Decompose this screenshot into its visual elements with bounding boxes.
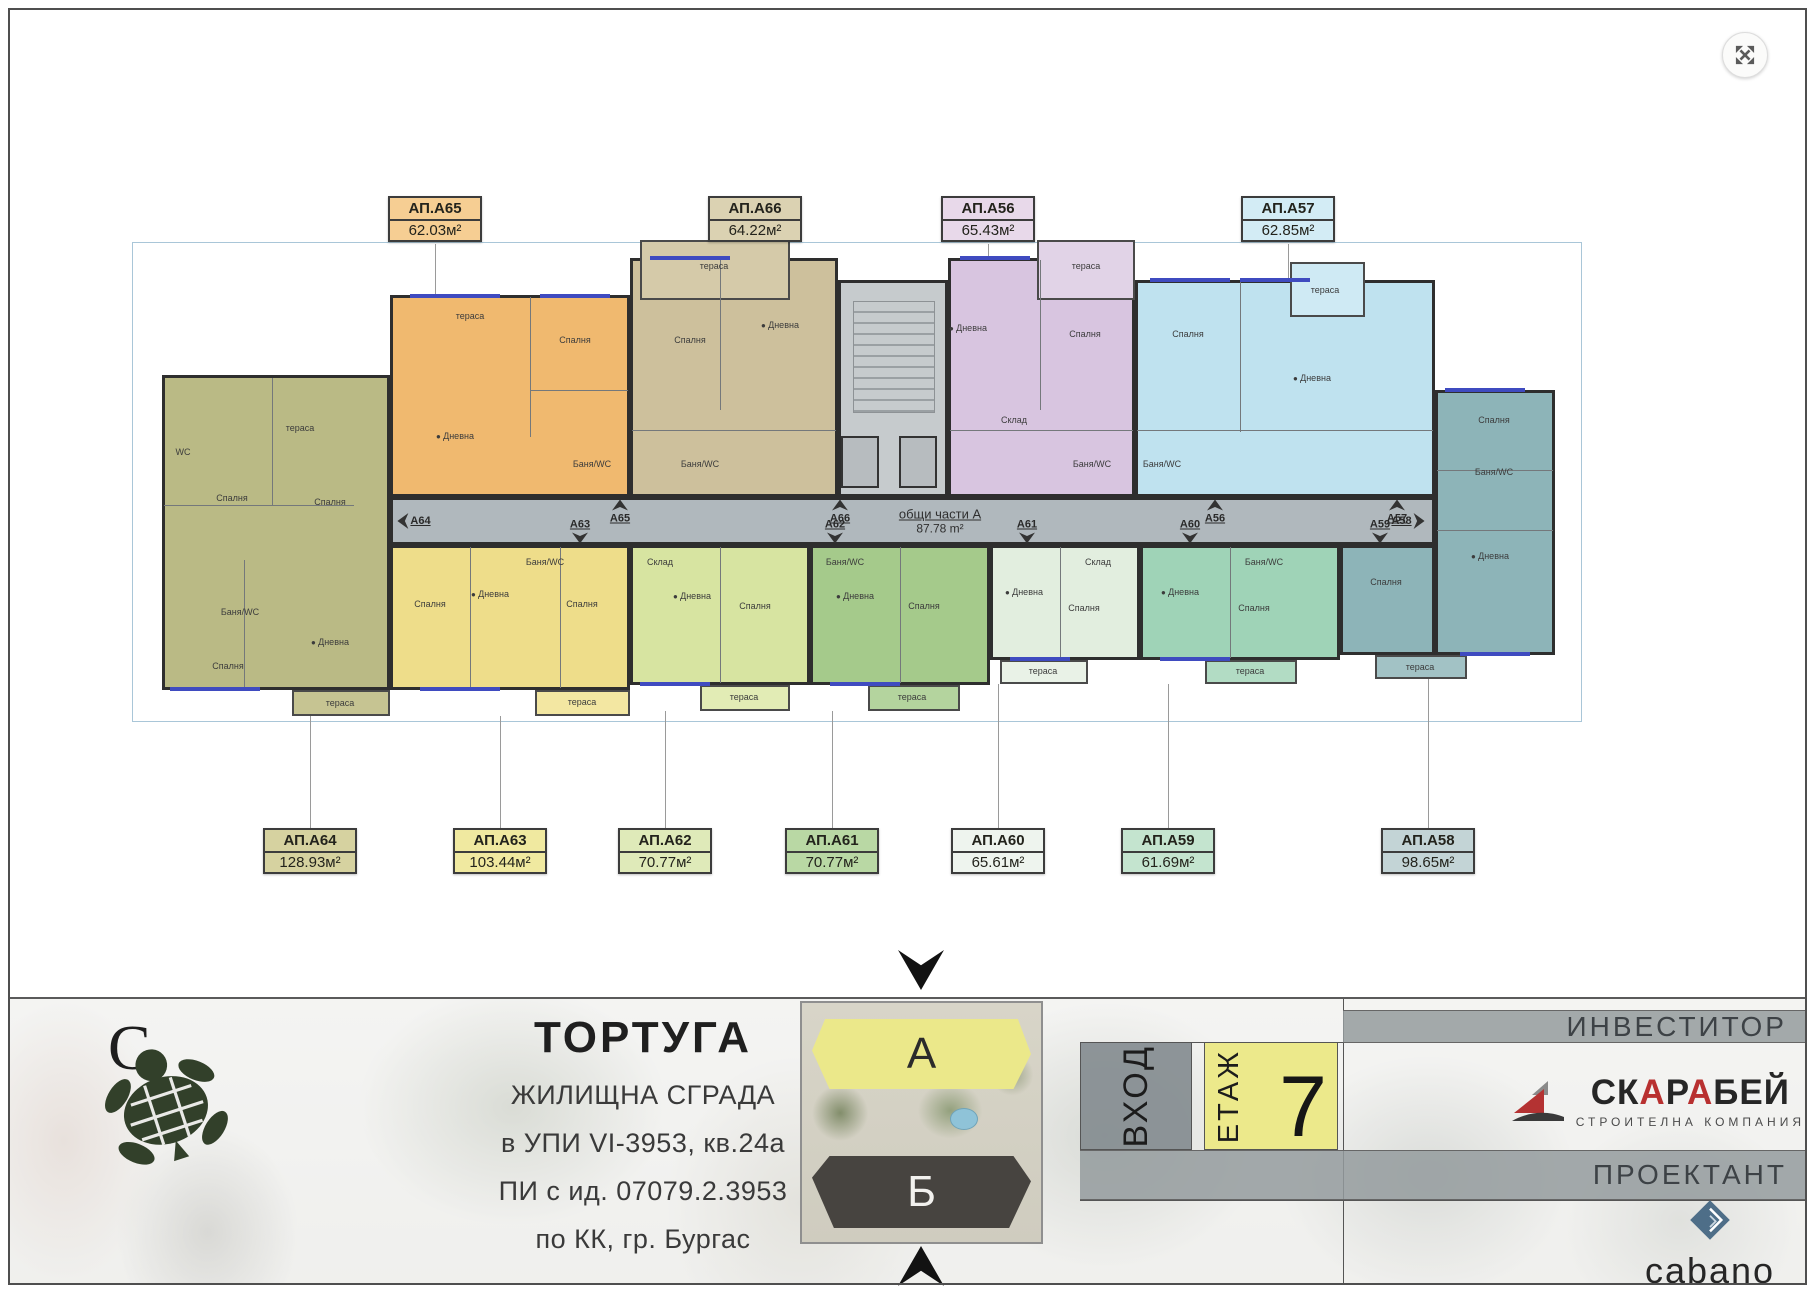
apartment-size: 70.77м² xyxy=(787,851,877,872)
window-segment xyxy=(420,687,500,691)
inner-wall xyxy=(530,297,531,437)
leader-line xyxy=(1428,679,1429,828)
corridor-door-label: А60 xyxy=(1180,519,1200,544)
apartment-id: АП.А66 xyxy=(710,198,800,219)
inner-wall xyxy=(1060,547,1061,658)
corridor-door-label: А58 xyxy=(1391,513,1424,529)
investor-band: ИНВЕСТИТОР xyxy=(1343,1010,1805,1043)
room-label: Спалня xyxy=(216,493,247,503)
inner-wall xyxy=(1137,430,1433,431)
apartment-id: АП.А60 xyxy=(953,830,1043,851)
building-b[interactable]: Б xyxy=(812,1156,1031,1228)
turtle-logo-icon xyxy=(88,1043,248,1173)
corridor-door-label: А62 xyxy=(825,519,845,544)
room-label: Спалня xyxy=(739,601,770,611)
apartment-badge[interactable]: АП.А59 61.69м² xyxy=(1121,828,1215,874)
corridor-door-label: А63 xyxy=(570,519,590,544)
inner-wall xyxy=(560,547,561,688)
room-label: Дневна xyxy=(1471,551,1509,561)
designer-label: ПРОЕКТАНТ xyxy=(1593,1159,1787,1191)
room-label: Дневна xyxy=(311,637,349,647)
entrance-label: ВХОД xyxy=(1117,1044,1156,1147)
room-label: Склад xyxy=(1085,557,1111,567)
apartment-badge[interactable]: АП.А56 65.43м² xyxy=(941,196,1035,242)
window-segment xyxy=(1160,657,1230,661)
inner-wall xyxy=(720,547,721,683)
inner-wall xyxy=(632,430,836,431)
cabano-diamond-icon xyxy=(1687,1197,1733,1243)
apartment-badge[interactable]: АП.А63 103.44м² xyxy=(453,828,547,874)
room-label: тераса xyxy=(730,692,759,702)
apartment-size: 103.44м² xyxy=(455,851,545,872)
leader-line xyxy=(832,711,833,828)
door-direction-dart xyxy=(1414,513,1425,529)
inner-wall xyxy=(530,390,628,391)
inner-wall xyxy=(1437,530,1553,531)
room-label: Баня/WC xyxy=(681,459,719,469)
room-label: Баня/WC xyxy=(221,607,259,617)
apartment-badge[interactable]: АП.А58 98.65м² xyxy=(1381,828,1475,874)
apartment-size: 61.69м² xyxy=(1123,851,1213,872)
room-label: Спалня xyxy=(566,599,597,609)
investor-tagline: СТРОИТЕЛНА КОМПАНИЯ xyxy=(1576,1115,1805,1129)
apartment-size: 98.65м² xyxy=(1383,851,1473,872)
room-label: тераса xyxy=(326,698,355,708)
door-direction-dart xyxy=(832,500,848,511)
designer-logo: cabano xyxy=(1580,1197,1815,1292)
door-direction-dart xyxy=(1372,533,1388,544)
apartment-id: АП.А59 xyxy=(1123,830,1213,851)
window-segment xyxy=(640,682,710,686)
staircase xyxy=(853,301,935,413)
apartment-badge[interactable]: АП.А64 128.93м² xyxy=(263,828,357,874)
site-map[interactable]: А Б xyxy=(800,1001,1043,1244)
room-label: Склад xyxy=(647,557,673,567)
floor-number: 7 xyxy=(1246,1067,1337,1149)
apartment-id: АП.А65 xyxy=(390,198,480,219)
window-segment xyxy=(1460,652,1530,656)
corridor-door-label: А56 xyxy=(1205,500,1225,525)
apartment-size: 64.22м² xyxy=(710,219,800,240)
expand-arrows-icon xyxy=(1732,42,1758,68)
inner-wall xyxy=(1040,260,1041,410)
room-label: Спалня xyxy=(908,601,939,611)
leader-line xyxy=(435,244,436,295)
common-area-label: общи части А 87.78 m² xyxy=(850,507,1030,536)
room-label: Спалня xyxy=(212,661,243,671)
room-label: Баня/WC xyxy=(526,557,564,567)
room-label: Баня/WC xyxy=(826,557,864,567)
room-label: тераса xyxy=(1311,285,1340,295)
room-label: тераса xyxy=(1072,261,1101,271)
room-label: Баня/WC xyxy=(573,459,611,469)
apartment-size: 128.93м² xyxy=(265,851,355,872)
apartment-id: АП.А62 xyxy=(620,830,710,851)
room-label: Дневна xyxy=(836,591,874,601)
building-a[interactable]: А xyxy=(812,1019,1031,1089)
investor-name: СКАРАБЕЙ xyxy=(1576,1073,1805,1113)
apartment-id: АП.А64 xyxy=(265,830,355,851)
apartment-badge[interactable]: АП.А57 62.85м² xyxy=(1241,196,1335,242)
apartment-badge[interactable]: АП.А62 70.77м² xyxy=(618,828,712,874)
apartment-area[interactable] xyxy=(390,545,630,690)
elevator xyxy=(841,436,879,488)
room-label: Спалня xyxy=(1172,329,1203,339)
window-segment xyxy=(650,256,730,260)
apartment-badge[interactable]: АП.А61 70.77м² xyxy=(785,828,879,874)
leader-line xyxy=(500,716,501,828)
leader-line xyxy=(998,684,999,828)
pool-icon xyxy=(950,1108,978,1130)
window-segment xyxy=(830,682,900,686)
apartment-badge[interactable]: АП.А65 62.03м² xyxy=(388,196,482,242)
leader-line xyxy=(1288,244,1289,280)
room-label: Спалня xyxy=(1068,603,1099,613)
inner-wall xyxy=(244,560,245,688)
window-segment xyxy=(960,256,1030,260)
room-label: тераса xyxy=(568,697,597,707)
building-a-label: А xyxy=(907,1029,936,1079)
door-direction-dart xyxy=(397,513,408,529)
leader-line xyxy=(665,711,666,828)
window-segment xyxy=(1010,657,1070,661)
room-label: тераса xyxy=(1236,666,1265,676)
room-label: Спалня xyxy=(314,497,345,507)
room-label: Дневна xyxy=(1005,587,1043,597)
room-label: тераса xyxy=(1029,666,1058,676)
apartment-id: АП.А56 xyxy=(943,198,1033,219)
apartment-size: 62.03м² xyxy=(390,219,480,240)
room-label: Баня/WC xyxy=(1475,467,1513,477)
door-direction-dart xyxy=(1207,500,1223,511)
apartment-area[interactable] xyxy=(990,545,1140,660)
room-label: тераса xyxy=(286,423,315,433)
room-label: Дневна xyxy=(761,320,799,330)
room-label: Дневна xyxy=(1293,373,1331,383)
floor-label: ЕТАЖ xyxy=(1213,1049,1246,1143)
leader-line xyxy=(1168,684,1169,828)
fullscreen-button[interactable] xyxy=(1722,32,1768,78)
apartment-id: АП.А58 xyxy=(1383,830,1473,851)
entrance-cell: ВХОД xyxy=(1080,1042,1192,1150)
stair-elevator-core xyxy=(838,280,948,497)
room-label: тераса xyxy=(1406,662,1435,672)
room-label: Баня/WC xyxy=(1143,459,1181,469)
inner-wall xyxy=(950,430,1133,431)
apartment-id: АП.А57 xyxy=(1243,198,1333,219)
investor-logo: СКАРАБЕЙ СТРОИТЕЛНА КОМПАНИЯ xyxy=(1465,1057,1805,1145)
apartment-id: АП.А63 xyxy=(455,830,545,851)
floor-plan-page: WCСпалняСпалнятерасаБаня/WCДневнаСпалнят… xyxy=(0,0,1815,1293)
apartment-badge[interactable]: АП.А60 65.61м² xyxy=(951,828,1045,874)
corridor-door-label: А59 xyxy=(1370,519,1390,544)
apartment-size: 65.61м² xyxy=(953,851,1043,872)
window-segment xyxy=(1240,278,1310,282)
room-label: Спалня xyxy=(1069,329,1100,339)
apartment-area[interactable] xyxy=(162,375,390,690)
corridor-door-label: А65 xyxy=(610,500,630,525)
room-label: Дневна xyxy=(1161,587,1199,597)
apartment-area[interactable] xyxy=(1340,545,1435,655)
leader-line xyxy=(310,716,311,828)
room-label: Склад xyxy=(1001,415,1027,425)
elevator xyxy=(899,436,937,488)
room-label: Спалня xyxy=(1238,603,1269,613)
inner-wall xyxy=(900,547,901,683)
room-label: тераса xyxy=(456,311,485,321)
door-direction-dart xyxy=(572,533,588,544)
inner-wall xyxy=(470,547,471,688)
door-direction-dart xyxy=(1389,500,1405,511)
room-label: Дневна xyxy=(436,431,474,441)
room-label: тераса xyxy=(700,261,729,271)
room-label: WC xyxy=(176,447,191,457)
apartment-id: АП.А61 xyxy=(787,830,877,851)
door-direction-dart xyxy=(612,500,628,511)
room-label: Спалня xyxy=(1478,415,1509,425)
window-segment xyxy=(410,294,500,298)
door-direction-dart xyxy=(827,533,843,544)
inner-wall xyxy=(272,378,273,505)
designer-band: ПРОЕКТАНТ xyxy=(1080,1150,1805,1200)
room-label: Баня/WC xyxy=(1073,459,1111,469)
window-segment xyxy=(1150,278,1230,282)
corridor-door-label: А64 xyxy=(397,513,430,529)
apartment-size: 65.43м² xyxy=(943,219,1033,240)
room-label: Спалня xyxy=(559,335,590,345)
inner-wall xyxy=(1230,547,1231,658)
inner-wall xyxy=(720,260,721,410)
skarabey-triangles-icon xyxy=(1510,1077,1568,1125)
investor-label: ИНВЕСТИТОР xyxy=(1566,1011,1787,1043)
room-label: тераса xyxy=(898,692,927,702)
room-label: Спалня xyxy=(414,599,445,609)
room-label: Баня/WC xyxy=(1245,557,1283,567)
apartment-size: 62.85м² xyxy=(1243,219,1333,240)
designer-name: cabano xyxy=(1580,1250,1815,1292)
building-b-label: Б xyxy=(907,1167,936,1217)
apartment-size: 70.77м² xyxy=(620,851,710,872)
info-bar: С ТОРТУГА ЖИЛИЩНА СГРАДА в УПИ VI-3953, … xyxy=(10,997,1805,1283)
door-direction-dart xyxy=(1182,533,1198,544)
room-label: Дневна xyxy=(471,589,509,599)
floor-cell: ЕТАЖ 7 xyxy=(1204,1042,1338,1150)
room-label: Спалня xyxy=(1370,577,1401,587)
room-label: Спалня xyxy=(674,335,705,345)
room-label: Дневна xyxy=(673,591,711,601)
apartment-area[interactable] xyxy=(1435,390,1555,655)
room-label: Дневна xyxy=(949,323,987,333)
apartment-badge[interactable]: АП.А66 64.22м² xyxy=(708,196,802,242)
window-segment xyxy=(170,687,260,691)
window-segment xyxy=(540,294,610,298)
inner-wall xyxy=(1240,282,1241,432)
window-segment xyxy=(1445,388,1525,392)
